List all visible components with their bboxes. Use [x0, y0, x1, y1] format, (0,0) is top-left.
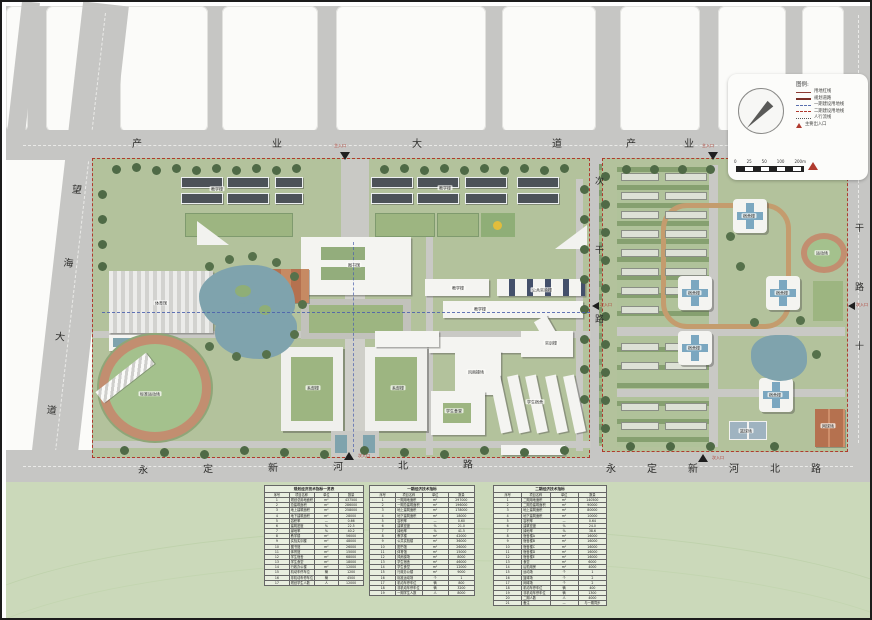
- teaching-building: [275, 177, 303, 188]
- row-building: [621, 362, 659, 370]
- teaching-building: [371, 177, 413, 188]
- row-building: [665, 192, 707, 200]
- legend-line-sample: [796, 105, 811, 106]
- dept-courtyard-building: [365, 347, 427, 431]
- campus2-horiz-path: [617, 389, 845, 397]
- legend-item: 二期建设用地线: [796, 110, 864, 114]
- road-label-yongding-east: 永定新河北路: [606, 460, 852, 475]
- table-cell: 非机动车停车位: [522, 590, 550, 595]
- table-row: 17规划学生人数人12000: [265, 580, 364, 585]
- legend-line-sample: [796, 98, 811, 100]
- city-block: [222, 6, 318, 132]
- row-building: [665, 230, 707, 238]
- axis-line-vertical: [353, 242, 354, 452]
- legend-entrance-triangle: [808, 162, 818, 170]
- legend-item: 规划道路: [796, 97, 864, 101]
- scale-ticks: 02550100200m: [734, 159, 806, 164]
- table-cell: 人: [422, 590, 448, 595]
- table-title: 一期经济技术指标: [370, 486, 475, 493]
- legend-line-sample: [796, 118, 811, 119]
- small-track: [801, 233, 847, 273]
- side-entrance-marker: [848, 302, 855, 310]
- legend-title: 图例:: [796, 80, 864, 88]
- row-building: [621, 268, 659, 276]
- row-building: [665, 268, 707, 276]
- row-building: [665, 422, 707, 430]
- row-building: [621, 403, 659, 411]
- legend-line-sample: [796, 92, 811, 93]
- city-block: [620, 6, 700, 132]
- row-building: [621, 211, 659, 219]
- scale-bar: [736, 166, 804, 172]
- legend-item: 用地红线: [796, 90, 864, 94]
- basketball-court: [729, 421, 748, 440]
- teaching-building: [181, 193, 223, 204]
- tennis-courts: [815, 409, 845, 447]
- city-block: [120, 6, 208, 132]
- entrance-label: 次入口: [358, 454, 370, 458]
- south-entrance-marker: [698, 454, 708, 462]
- legend-item-label: 二期建设用地线: [814, 110, 844, 114]
- gymnasium-building: [109, 271, 213, 333]
- garden-patch: [437, 213, 479, 237]
- row-building: [621, 287, 659, 295]
- compass-needle-icon: [744, 101, 773, 131]
- main-entrance-marker: [708, 152, 718, 160]
- cross-tower-building: [678, 331, 712, 365]
- city-block: [336, 6, 486, 132]
- library-roof-garden: [321, 267, 365, 280]
- entrance-triangle-icon: [796, 123, 802, 128]
- cross-tower-building: [766, 276, 800, 310]
- main-entrance-marker: [340, 152, 350, 160]
- canteen-court: [443, 403, 471, 423]
- legend-items: 用地红线规划道路一期建设用地线二期建设用地线人行流线主要出入口: [796, 90, 864, 127]
- teaching-building: [517, 177, 559, 188]
- row-building: [621, 192, 659, 200]
- legend-line-sample: [796, 111, 811, 112]
- entrance-label: 次入口: [856, 303, 868, 307]
- row-building: [621, 230, 659, 238]
- scale-tick: 100: [777, 159, 785, 164]
- teaching-building: [227, 193, 269, 204]
- lab-building: [425, 279, 489, 296]
- row-building: [665, 211, 707, 219]
- table-cell: 8000: [448, 590, 474, 595]
- cross-tower-building: [733, 199, 767, 233]
- scale-tick: 200m: [794, 159, 806, 164]
- indicator-table-overall: 规划经济技术指标一览表序号项目名称单位数量1规划总用地面积m²4375002总建…: [264, 485, 364, 586]
- teaching-building: [417, 193, 459, 204]
- south-bar-building: [375, 331, 439, 347]
- table-title: 规划经济技术指标一览表: [265, 486, 364, 493]
- site-plan: 产业大道 产业大道 永定新河北路 永定新河北路 望海大道 次干路 次干路十 主入…: [0, 0, 872, 620]
- dormitory-low: [501, 445, 565, 455]
- compass: [738, 88, 784, 134]
- table-cell: 21: [494, 601, 522, 606]
- legend-card: 图例: 用地红线规划道路一期建设用地线二期建设用地线人行流线主要出入口 0255…: [728, 74, 868, 180]
- pavilion-dot: [493, 221, 502, 230]
- road-label-cigan-east: 次干路十: [852, 164, 865, 400]
- sculpture-triangle: [555, 225, 587, 249]
- table-cell: 与一期同步: [578, 601, 606, 606]
- row-building: [665, 403, 707, 411]
- entrance-label: 次入口: [712, 456, 724, 460]
- garden-patch: [375, 213, 435, 237]
- city-block: [502, 6, 596, 132]
- basketball-court: [748, 421, 767, 440]
- library-roof-garden: [321, 247, 365, 260]
- teaching-building: [371, 193, 413, 204]
- scale-tick: 25: [747, 159, 752, 164]
- row-building: [621, 173, 659, 181]
- garden-patch: [813, 281, 843, 321]
- row-building: [621, 306, 659, 314]
- lake-island: [259, 305, 271, 315]
- table-cell: 19: [370, 590, 396, 595]
- axis-line-horizontal: [102, 312, 590, 313]
- legend-item-label: 用地红线: [814, 90, 831, 94]
- gate-pool: [363, 435, 375, 453]
- indicator-table-phase2: 二期经济技术指标序号项目名称单位数量1二期用地面积m²1405002二期总建筑面…: [493, 485, 607, 606]
- training-building: [521, 331, 573, 357]
- teaching-building: [517, 193, 559, 204]
- teaching-building: [465, 177, 507, 188]
- table-cell: —: [550, 601, 578, 606]
- campus-parcel-east: [602, 158, 848, 452]
- legend-list: 图例: 用地红线规划道路一期建设用地线二期建设用地线人行流线主要出入口: [796, 80, 864, 130]
- table-cell: 备注: [522, 601, 550, 606]
- row-building: [665, 173, 707, 181]
- row-building: [665, 249, 707, 257]
- legend-item-label: 规划道路: [814, 97, 831, 101]
- table-cell: 12000: [339, 580, 364, 585]
- south-entrance-marker: [344, 452, 354, 460]
- road-label-cigan-middle: 次干路: [592, 176, 605, 383]
- campus2-pond: [751, 335, 807, 381]
- table-cell: 规划总用地面积: [289, 498, 314, 503]
- cross-tower-building: [678, 276, 712, 310]
- indicator-table-phase1: 一期经济技术指标序号项目名称单位数量1一期用地面积m²2970002一期总建筑面…: [369, 485, 475, 596]
- table-cell: 规划学生人数: [289, 580, 314, 585]
- legend-item: 主要出入口: [796, 123, 864, 128]
- table-cell: 一期学生人数: [396, 590, 422, 595]
- dept-courtyard-building: [281, 347, 343, 431]
- row-building: [621, 343, 659, 351]
- table-cell: 17: [265, 580, 290, 585]
- loop-road: [661, 203, 791, 329]
- teaching-building: [465, 193, 507, 204]
- lake-island: [235, 285, 251, 297]
- lab-building: [497, 279, 585, 296]
- entrance-label: 次入口: [600, 303, 612, 307]
- table-title: 二期经济技术指标: [494, 486, 607, 493]
- teaching-bar: [443, 301, 583, 318]
- table-cell: 一期总建筑面积: [396, 503, 422, 508]
- campus-parcel-west: [92, 158, 590, 458]
- cross-tower-building: [759, 378, 793, 412]
- table-cell: 人: [314, 580, 339, 585]
- legend-item-label: 主要出入口: [805, 123, 826, 127]
- legend-item: 人行流线: [796, 116, 864, 120]
- table-cell: 非机动车停车位: [396, 585, 422, 590]
- library-building: [301, 237, 411, 295]
- scale-tick: 0: [734, 159, 737, 164]
- entrance-label: 主入口: [334, 144, 346, 148]
- row-building: [621, 249, 659, 257]
- legend-item-label: 人行流线: [814, 116, 831, 120]
- central-lawn: [309, 305, 403, 333]
- teaching-building: [181, 177, 223, 188]
- road-label-chanye-west: 产业大道: [132, 135, 692, 150]
- table-row: 19一期学生人数人8000: [370, 590, 475, 595]
- teaching-building: [417, 177, 459, 188]
- legend-item-label: 一期建设用地线: [814, 103, 844, 107]
- entrance-label: 主入口: [702, 144, 714, 148]
- row-building: [621, 422, 659, 430]
- teaching-building: [227, 177, 269, 188]
- legend-item: 一期建设用地线: [796, 103, 864, 107]
- side-entrance-marker: [592, 302, 599, 310]
- gate-pool: [335, 435, 347, 453]
- table-cell: 非机动车停车位: [289, 575, 314, 580]
- scale-tick: 50: [762, 159, 767, 164]
- teaching-building: [275, 193, 303, 204]
- table-row: 21备注—与一期同步: [494, 601, 607, 606]
